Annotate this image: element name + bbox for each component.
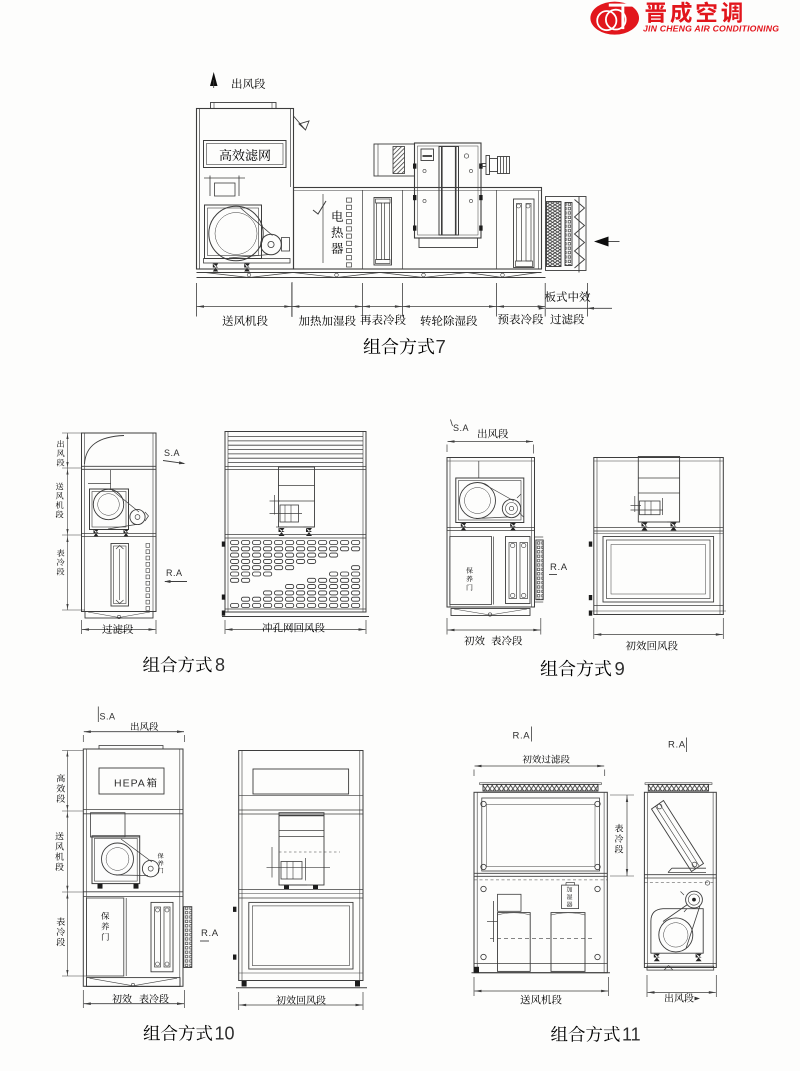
svg-text:8: 8 (215, 655, 225, 675)
svg-text:HEPA: HEPA (114, 778, 146, 790)
svg-text:R.A: R.A (550, 562, 568, 573)
svg-text:JIN CHENG AIR CONDITIONING: JIN CHENG AIR CONDITIONING (643, 23, 779, 33)
svg-text:R.A: R.A (668, 740, 686, 751)
svg-text:R.A: R.A (166, 568, 183, 578)
svg-text:R.A: R.A (513, 731, 531, 742)
svg-text:11: 11 (622, 1025, 641, 1045)
svg-text:S.A: S.A (100, 712, 116, 722)
svg-text:9: 9 (615, 658, 625, 679)
svg-text:R.A: R.A (201, 928, 219, 939)
svg-text:S.A: S.A (453, 423, 469, 433)
svg-text:S.A: S.A (164, 448, 180, 458)
svg-text:7: 7 (436, 336, 446, 357)
svg-text:10: 10 (215, 1024, 235, 1044)
